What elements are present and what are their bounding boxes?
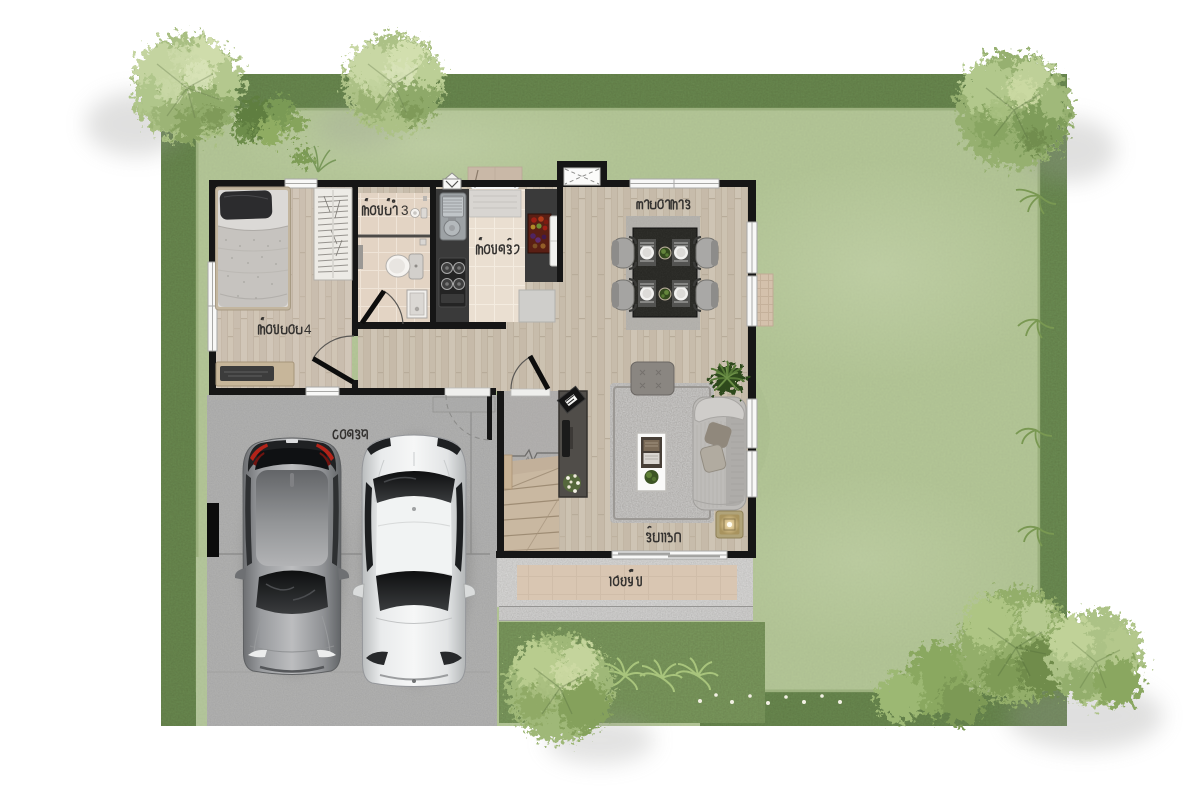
svg-text:4: 4	[304, 322, 312, 337]
svg-text:3: 3	[401, 203, 409, 218]
